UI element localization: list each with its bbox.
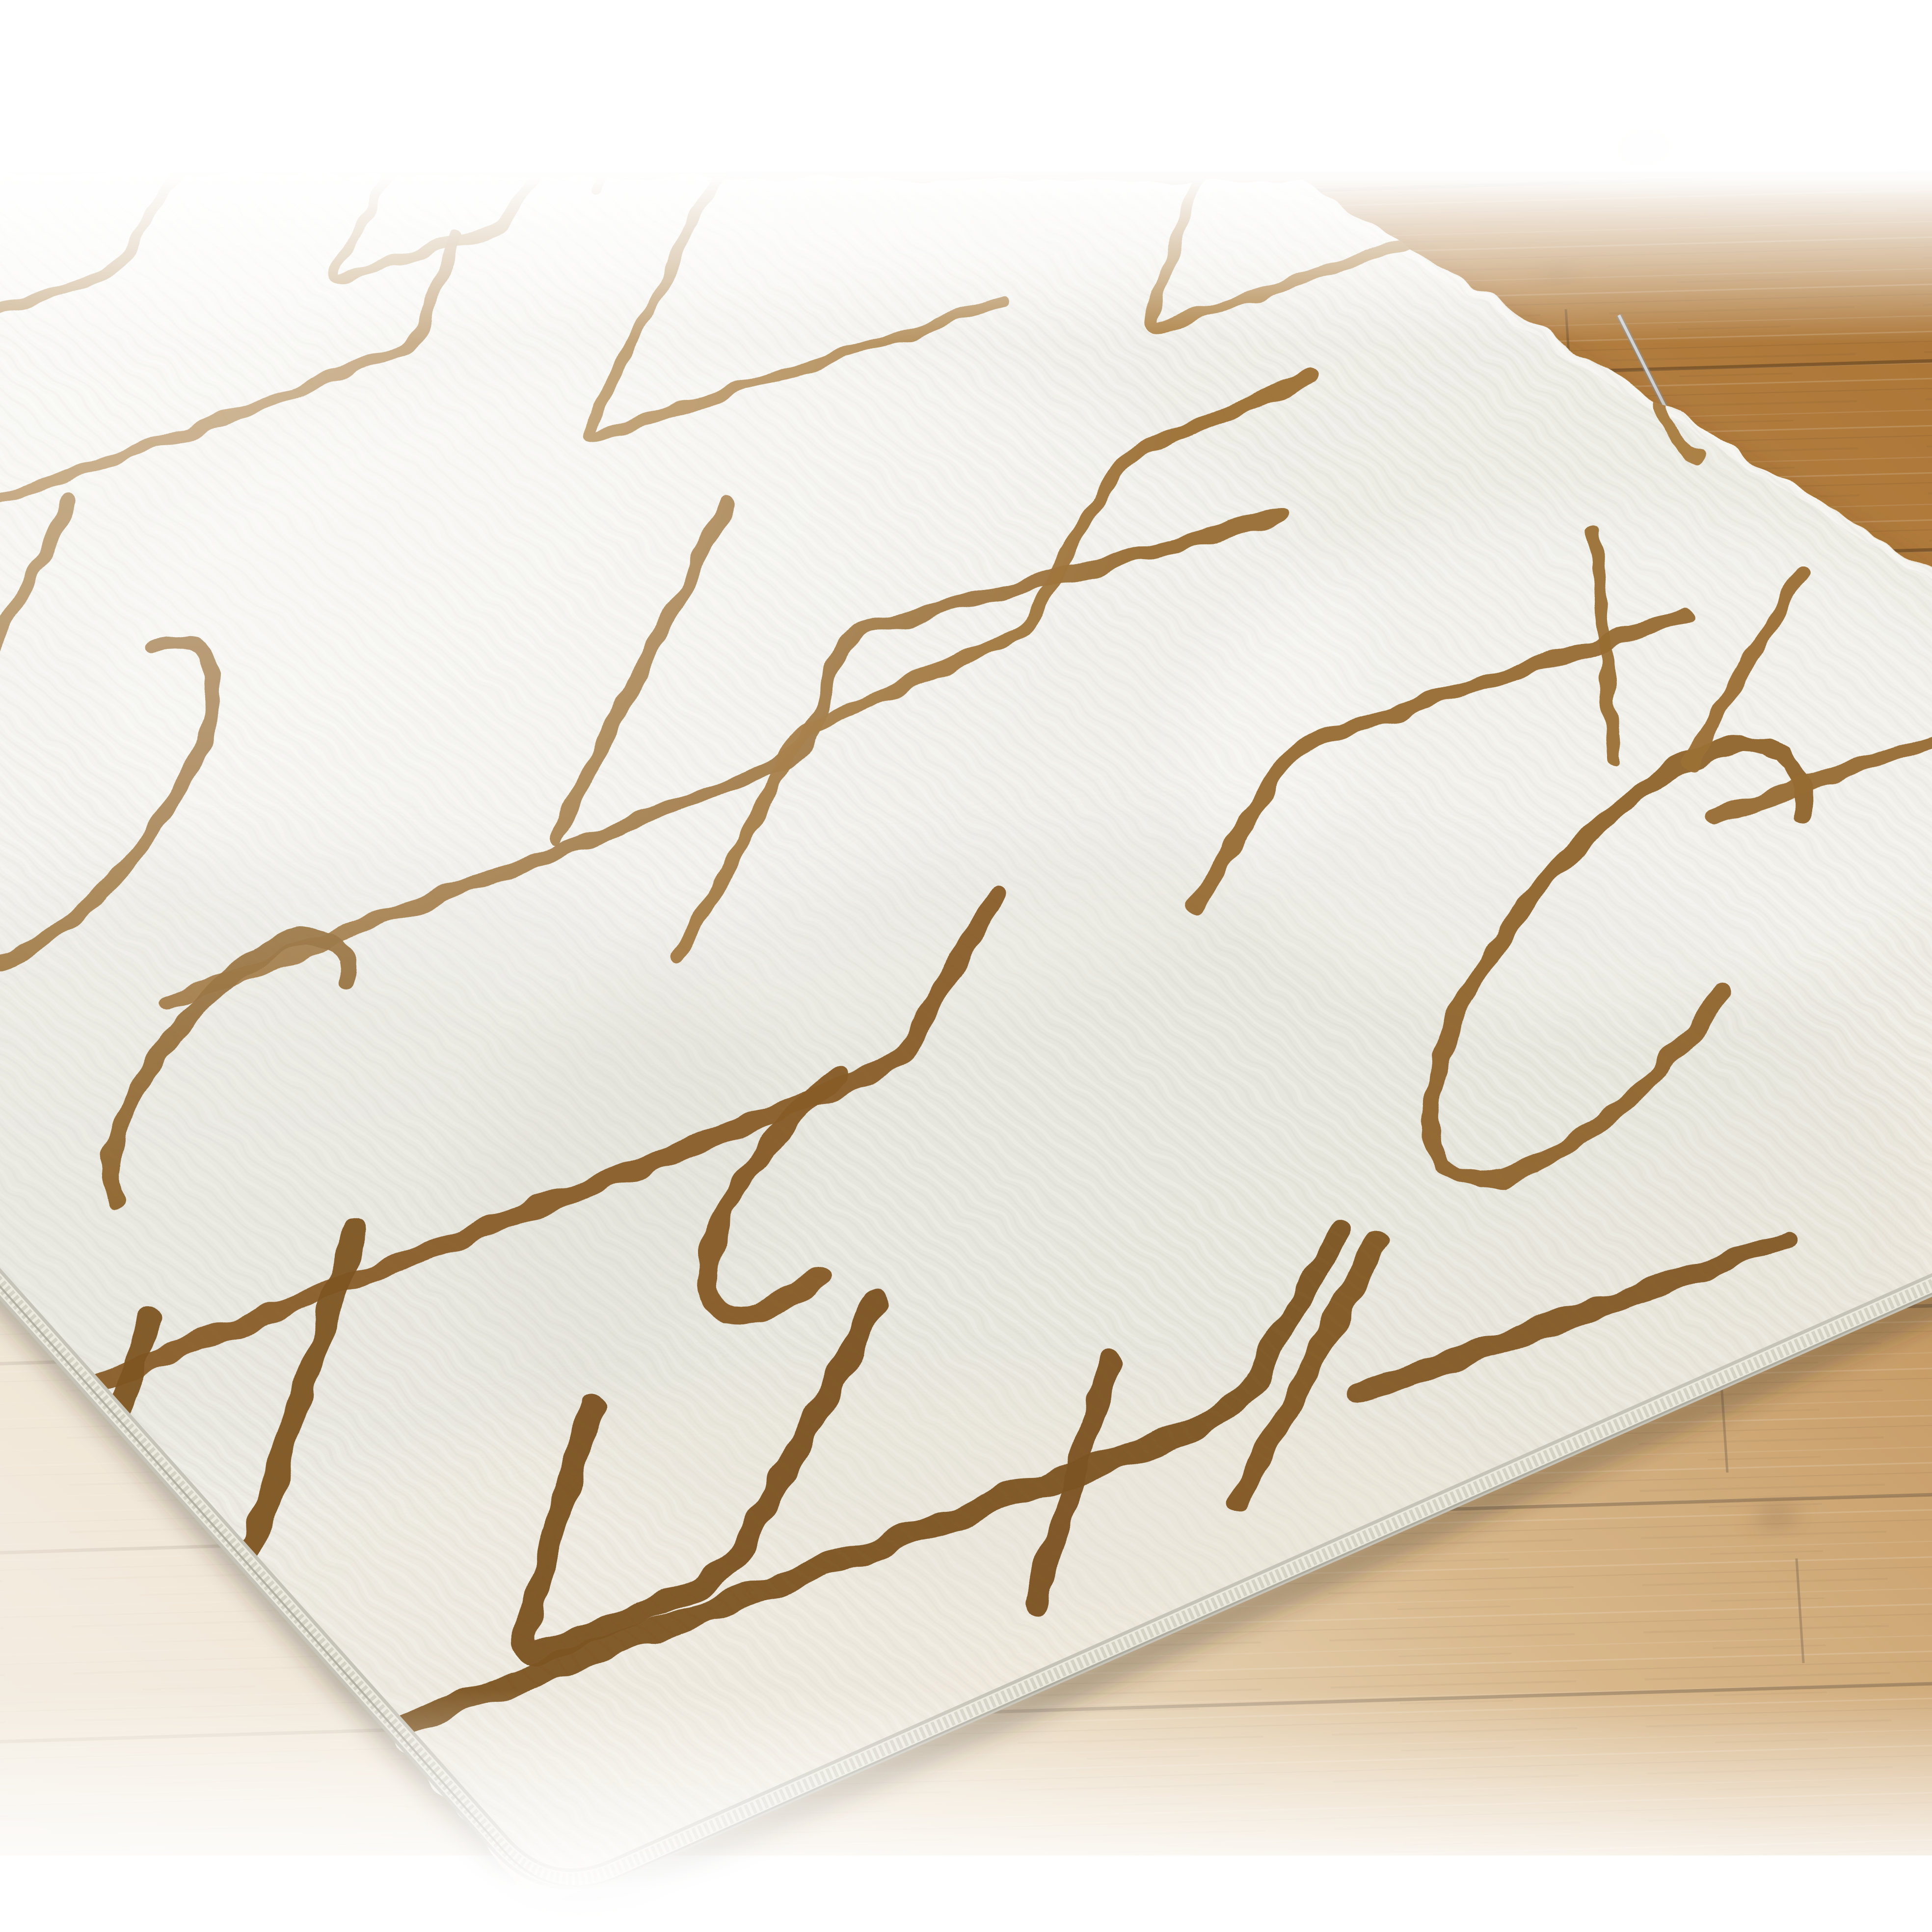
photo-white-fades <box>0 0 1932 1932</box>
top-left-haze <box>0 0 1932 1932</box>
product-photo-rug-on-wood-floor <box>0 0 1932 1932</box>
